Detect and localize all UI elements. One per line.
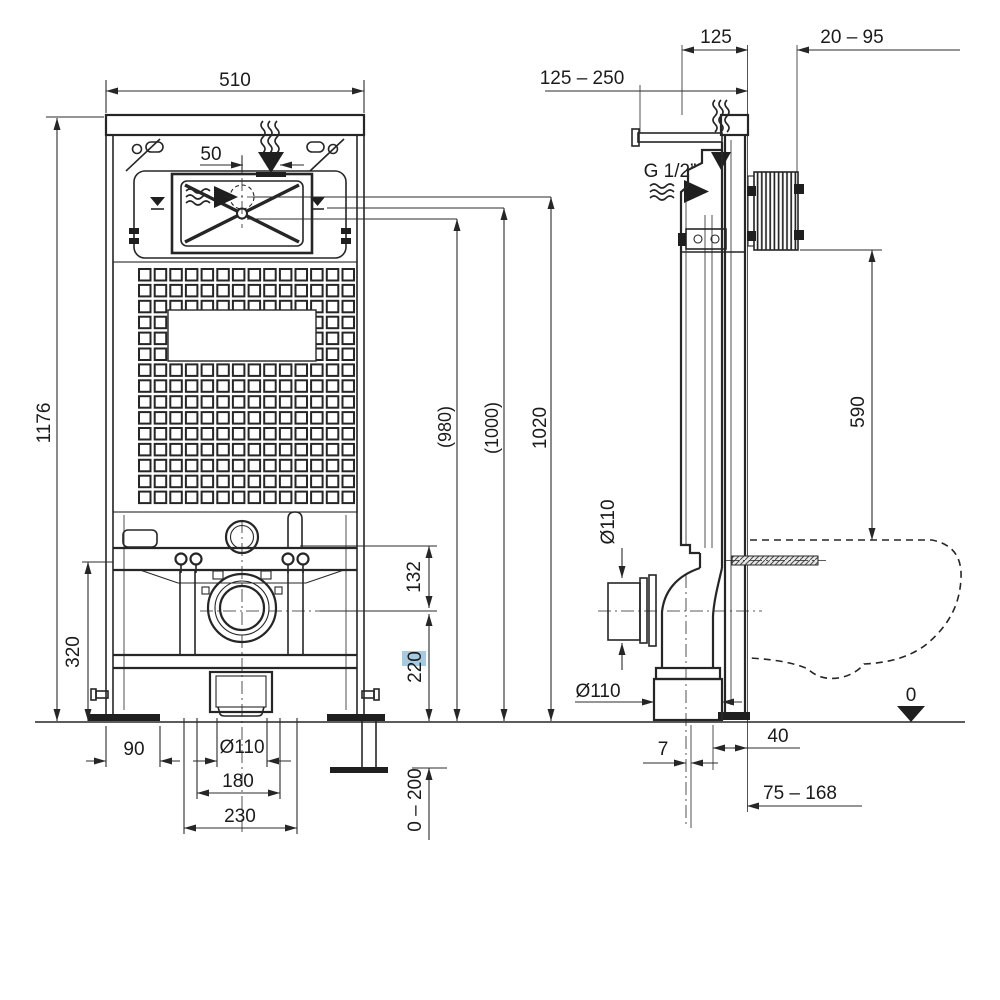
side-view: G 1/2” bbox=[540, 27, 961, 828]
dim-outlet-depth-range: 75 – 168 bbox=[763, 783, 837, 804]
corner-brace-left bbox=[126, 139, 163, 171]
fixing-stud bbox=[726, 556, 826, 565]
supply-connection-symbol bbox=[650, 180, 709, 203]
corner-brace-right bbox=[307, 139, 344, 171]
dim-height-option-2: (1000) bbox=[482, 402, 502, 454]
dim-outlet-pipe-diameter: Ø110 bbox=[598, 499, 619, 544]
dim-outlet-to-wall: 40 bbox=[767, 726, 788, 747]
dim-outlet-center-height: 220 bbox=[405, 651, 426, 683]
dim-fixing-spacing: 230 bbox=[224, 806, 256, 827]
dim-floor-outlet-diameter: Ø110 bbox=[575, 681, 620, 702]
dim-leg-adjustment-range: 0 – 200 bbox=[405, 768, 426, 831]
dim-drain-spacing: 180 bbox=[222, 771, 254, 792]
extended-foot-plate bbox=[330, 767, 388, 773]
dim-front-drain-diameter: Ø110 bbox=[219, 737, 264, 758]
panel-service-window bbox=[168, 310, 316, 361]
dim-plate-to-bowl-height: 590 bbox=[848, 396, 869, 428]
dim-inlet-offset: 50 bbox=[200, 144, 221, 165]
dim-height-option-1: (980) bbox=[435, 406, 455, 448]
dim-supply-rod-range: 125 – 250 bbox=[540, 68, 625, 89]
dim-bracket-height: 320 bbox=[63, 636, 84, 668]
dim-bracket-to-outlet: 132 bbox=[404, 561, 425, 593]
dim-foot-plate-width: 90 bbox=[123, 739, 144, 760]
actuator-plate bbox=[747, 172, 804, 250]
water-level-symbol-left bbox=[150, 197, 165, 209]
technical-drawing-page: 510 50 1176 320 90 Ø110 bbox=[0, 0, 1000, 1000]
dim-overall-install-height: 1020 bbox=[530, 407, 551, 449]
connector-sleeve bbox=[598, 575, 762, 646]
dim-frame-height: 1176 bbox=[34, 403, 55, 444]
dim-front-overall-width: 510 bbox=[219, 70, 251, 91]
cistern-profile bbox=[678, 142, 745, 553]
drain-elbow bbox=[654, 553, 722, 828]
dim-frame-depth: 125 bbox=[700, 27, 732, 48]
water-supply-rod bbox=[632, 129, 722, 146]
label-floor-datum: 0 bbox=[906, 685, 917, 706]
rail-bracket bbox=[678, 229, 726, 249]
front-view: 510 50 1176 320 90 Ø110 bbox=[34, 70, 551, 840]
dim-plate-clearance-range: 20 – 95 bbox=[820, 27, 883, 48]
water-inlet-symbol bbox=[256, 121, 286, 177]
dim-center-offset: 7 bbox=[658, 739, 669, 760]
wc-frame-installation-drawing: 510 50 1176 320 90 Ø110 bbox=[0, 0, 1000, 1000]
drain-pocket bbox=[210, 672, 272, 716]
grid-panel bbox=[113, 262, 357, 512]
side-dimensions: 125 – 250 125 20 – 95 590 Ø110 Ø110 7 bbox=[540, 27, 960, 828]
floor-datum-symbol bbox=[897, 706, 925, 722]
